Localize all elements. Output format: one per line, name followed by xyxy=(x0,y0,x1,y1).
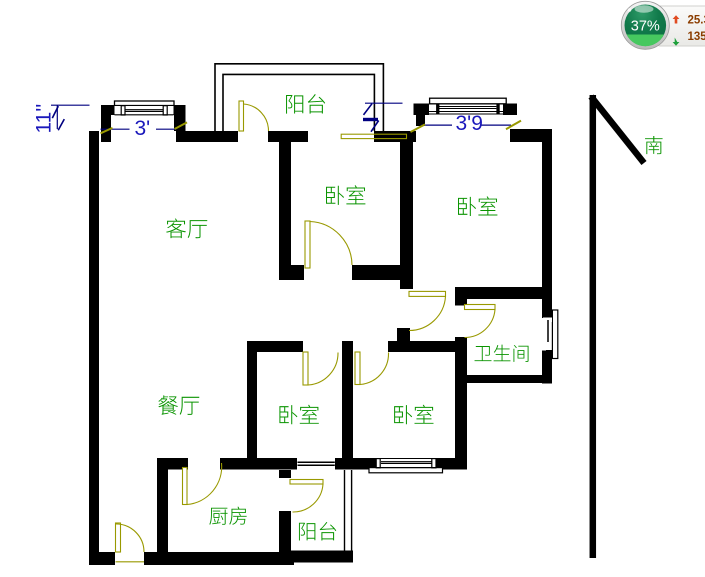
svg-text:11'': 11'' xyxy=(33,104,56,134)
svg-text:135: 135 xyxy=(688,31,705,43)
svg-text:3': 3' xyxy=(135,117,151,140)
svg-text:3'9: 3'9 xyxy=(456,112,483,135)
svg-text:37%: 37% xyxy=(631,18,660,34)
svg-text:25.3: 25.3 xyxy=(688,14,705,26)
